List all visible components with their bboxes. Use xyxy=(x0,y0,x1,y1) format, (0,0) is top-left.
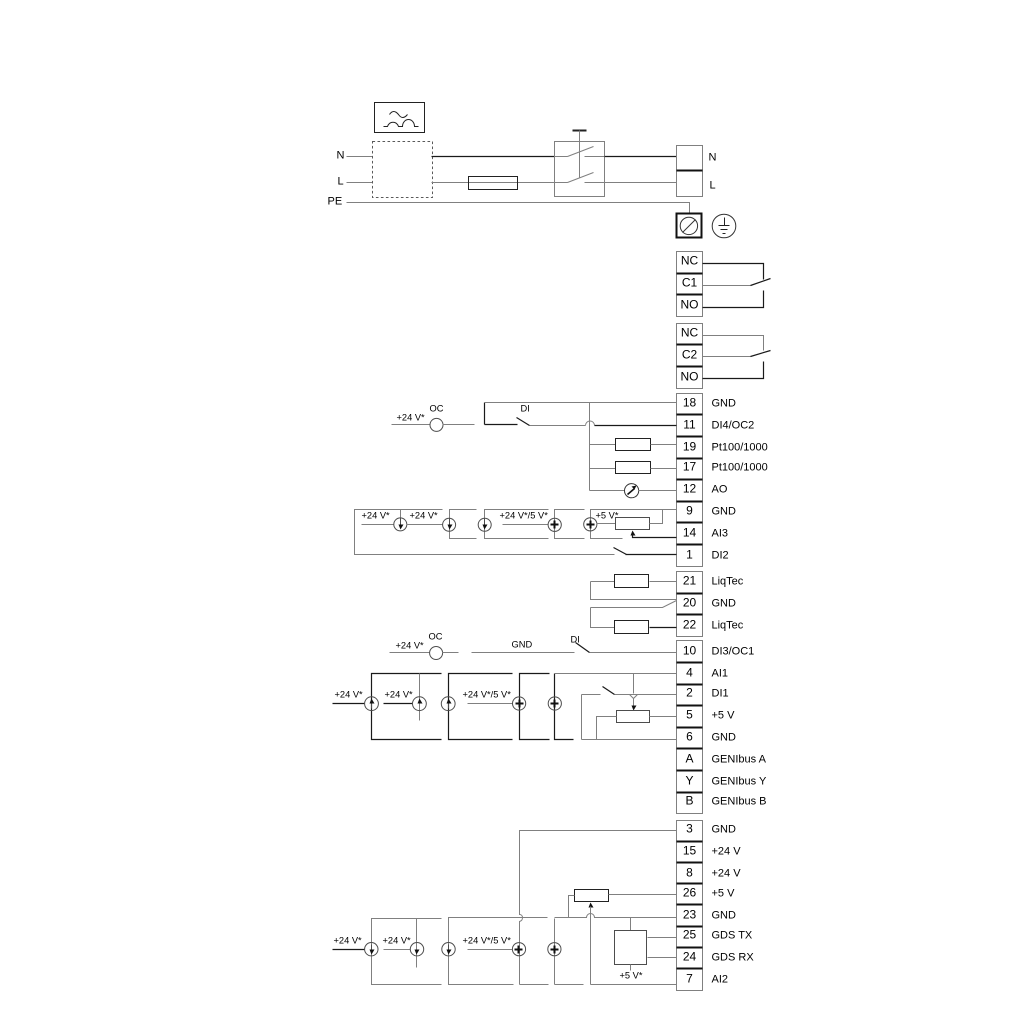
svg-text:GND: GND xyxy=(712,824,737,836)
svg-text:+24 V*: +24 V* xyxy=(396,641,425,651)
svg-text:+24 V*: +24 V* xyxy=(334,936,363,946)
svg-text:1: 1 xyxy=(686,548,693,562)
svg-text:Y: Y xyxy=(685,774,693,788)
svg-text:2: 2 xyxy=(686,686,693,700)
svg-text:L: L xyxy=(338,176,344,188)
svg-text:GENIbus B: GENIbus B xyxy=(712,796,767,808)
svg-text:NC: NC xyxy=(681,254,699,268)
svg-text:AI2: AI2 xyxy=(712,974,729,986)
svg-text:18: 18 xyxy=(683,396,697,410)
svg-text:11: 11 xyxy=(683,418,696,432)
svg-text:DI: DI xyxy=(571,635,580,645)
svg-text:DI2: DI2 xyxy=(712,550,729,562)
svg-text:N: N xyxy=(337,150,345,162)
svg-text:LiqTec: LiqTec xyxy=(712,620,744,632)
svg-text:N: N xyxy=(709,152,717,164)
svg-text:+24 V: +24 V xyxy=(712,868,742,880)
svg-text:25: 25 xyxy=(683,928,697,942)
svg-text:+24 V*: +24 V* xyxy=(362,511,391,521)
svg-text:7: 7 xyxy=(686,972,693,986)
svg-text:DI3/OC1: DI3/OC1 xyxy=(712,646,755,658)
svg-text:DI4/OC2: DI4/OC2 xyxy=(712,420,755,432)
svg-text:GND: GND xyxy=(712,598,737,610)
svg-text:+24 V*: +24 V* xyxy=(397,413,426,423)
svg-text:GDS TX: GDS TX xyxy=(712,930,753,942)
svg-text:19: 19 xyxy=(683,440,697,454)
svg-text:LiqTec: LiqTec xyxy=(712,576,744,588)
svg-text:+5 V: +5 V xyxy=(712,888,736,900)
svg-text:DI: DI xyxy=(521,404,530,414)
svg-text:26: 26 xyxy=(683,886,697,900)
svg-text:+24 V*/5 V*: +24 V*/5 V* xyxy=(463,690,512,700)
svg-text:GND: GND xyxy=(512,640,533,650)
svg-text:A: A xyxy=(685,752,693,766)
svg-text:8: 8 xyxy=(686,866,693,880)
svg-text:9: 9 xyxy=(686,504,693,518)
svg-text:21: 21 xyxy=(683,574,697,588)
svg-text:+24 V*: +24 V* xyxy=(335,690,364,700)
svg-text:+5 V*: +5 V* xyxy=(620,971,643,981)
svg-text:GENIbus A: GENIbus A xyxy=(712,754,767,766)
svg-text:AI1: AI1 xyxy=(712,668,729,680)
svg-text:GND: GND xyxy=(712,732,737,744)
svg-text:12: 12 xyxy=(683,482,697,496)
svg-text:20: 20 xyxy=(683,596,697,610)
svg-text:3: 3 xyxy=(686,822,693,836)
svg-text:17: 17 xyxy=(683,460,697,474)
svg-text:5: 5 xyxy=(686,708,693,722)
svg-text:24: 24 xyxy=(683,950,697,964)
svg-text:23: 23 xyxy=(683,908,697,922)
svg-text:4: 4 xyxy=(686,666,693,680)
svg-text:OC: OC xyxy=(430,404,444,414)
svg-text:GDS RX: GDS RX xyxy=(712,952,755,964)
svg-text:+24 V: +24 V xyxy=(712,846,742,858)
svg-text:DI1: DI1 xyxy=(712,688,729,700)
svg-text:PE: PE xyxy=(328,196,343,208)
svg-text:NO: NO xyxy=(681,298,699,312)
svg-text:AO: AO xyxy=(712,484,728,496)
svg-text:OC: OC xyxy=(429,632,443,642)
svg-text:6: 6 xyxy=(686,730,693,744)
svg-text:22: 22 xyxy=(683,618,697,632)
svg-text:+24 V*/5 V*: +24 V*/5 V* xyxy=(463,936,512,946)
svg-text:GND: GND xyxy=(712,910,737,922)
svg-text:NC: NC xyxy=(681,326,699,340)
svg-text:+24 V*: +24 V* xyxy=(410,511,439,521)
svg-text:Pt100/1000: Pt100/1000 xyxy=(712,462,768,474)
svg-text:GND: GND xyxy=(712,506,737,518)
svg-text:NO: NO xyxy=(681,370,699,384)
svg-text:+24 V*: +24 V* xyxy=(383,936,412,946)
svg-text:B: B xyxy=(685,794,693,808)
svg-text:15: 15 xyxy=(683,844,697,858)
svg-text:14: 14 xyxy=(683,526,697,540)
svg-text:AI3: AI3 xyxy=(712,528,729,540)
svg-text:L: L xyxy=(710,180,716,192)
svg-text:C1: C1 xyxy=(682,276,698,290)
svg-text:+24 V*: +24 V* xyxy=(385,690,414,700)
svg-text:C2: C2 xyxy=(682,348,698,362)
svg-text:10: 10 xyxy=(683,644,697,658)
svg-text:GENIbus Y: GENIbus Y xyxy=(712,776,767,788)
svg-text:GND: GND xyxy=(712,398,737,410)
svg-text:Pt100/1000: Pt100/1000 xyxy=(712,442,768,454)
svg-text:+24 V*/5 V*: +24 V*/5 V* xyxy=(500,511,549,521)
svg-text:+5 V: +5 V xyxy=(712,710,736,722)
